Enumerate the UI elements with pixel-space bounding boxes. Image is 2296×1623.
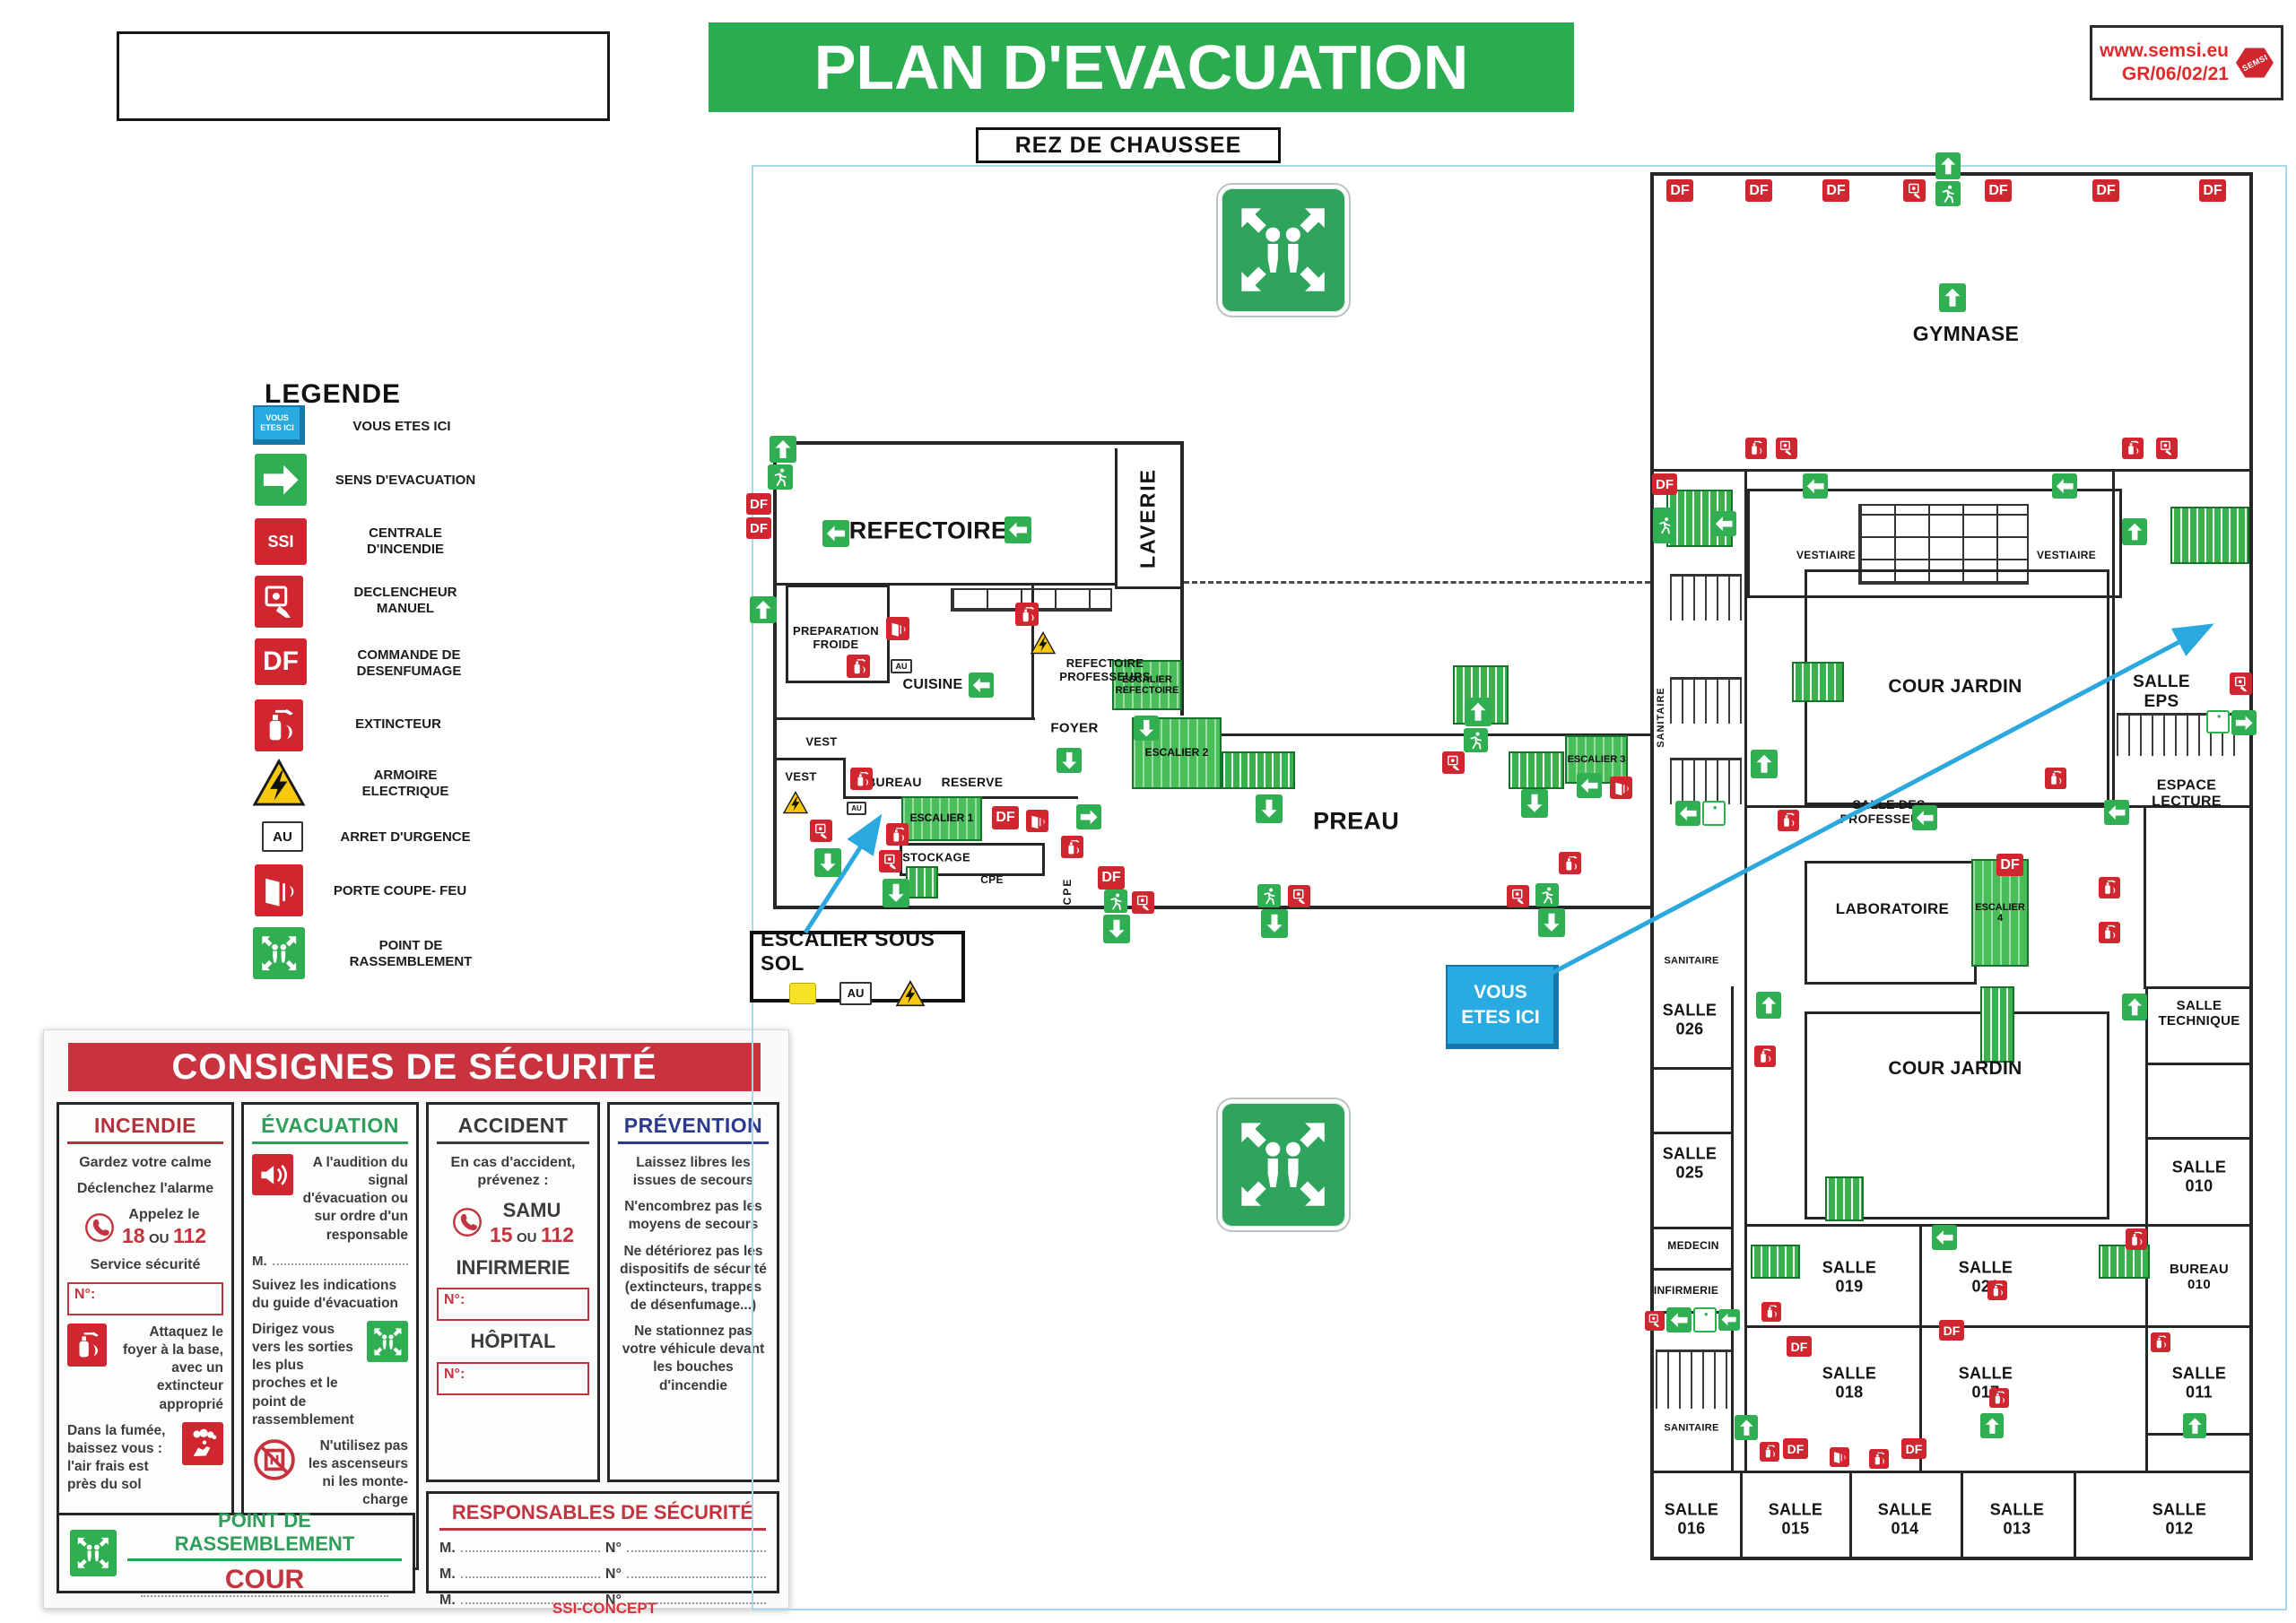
wall [773, 717, 1035, 720]
exit-running-man-icon [2206, 710, 2230, 733]
extinguisher-icon [2122, 438, 2144, 459]
stairs [1751, 1245, 1800, 1279]
number-112: 112 [541, 1223, 574, 1246]
electrical-hazard-icon [251, 759, 307, 807]
assembly-point-icon [1218, 185, 1349, 316]
electrical-hazard-icon [1030, 631, 1057, 655]
prevention-item: Ne stationnez pas votre véhicule devant … [618, 1323, 769, 1395]
accident-intro: En cas d'accident, prévenez : [437, 1154, 589, 1190]
evac-arrow-up-icon [1980, 1413, 2004, 1438]
manual-call-point-icon [1288, 885, 1310, 907]
m-label: M. [439, 1541, 456, 1557]
room-label: SALLE 013 [1981, 1500, 2053, 1537]
extinguisher-icon [1989, 1388, 2009, 1408]
footer-url: www.ssi-concept.com [474, 1620, 735, 1623]
assembly-point-icon [253, 927, 305, 979]
emergency-stop-icon: AU [891, 659, 912, 673]
dotted-line [273, 1253, 408, 1265]
smoke-extraction-icon: DF [255, 638, 307, 685]
incendie-call: Appelez le 18 OU 112 [67, 1206, 223, 1248]
phone-icon [452, 1207, 483, 1237]
room-label: VEST [805, 736, 837, 750]
hopital-label: HÔPITAL [437, 1329, 589, 1354]
wall [2144, 807, 2146, 986]
manual-call-point-icon [1776, 438, 1797, 459]
stair-hatch [1670, 758, 1742, 804]
extinguisher-icon [2045, 768, 2066, 789]
extinguisher-icon [2126, 1228, 2147, 1250]
signal-text: A l'audition du signal d'évacuation ou s… [300, 1154, 408, 1245]
room-label: REFECTOIRE PROFESSEURS [1051, 657, 1159, 684]
m-label: M. [252, 1254, 267, 1269]
evac-arrow-down-icon [1256, 794, 1283, 823]
smoke-extraction-icon: DF [1901, 1438, 1926, 1459]
extinguisher-icon [1760, 1442, 1779, 1462]
legend-item-label: ARMOIRE ELECTRIQUE [334, 768, 477, 800]
escalier-sous-sol-callout: ESCALIER SOUS SOL AU [750, 931, 965, 1002]
wall [843, 758, 846, 798]
extinguisher-icon [67, 1324, 107, 1367]
numero-field: N°: [67, 1282, 223, 1315]
assembly-point-icon [367, 1321, 408, 1362]
room-label: SALLE 025 [1654, 1144, 1726, 1181]
room-label: SALLE 012 [2144, 1500, 2215, 1537]
stairs [1509, 751, 1564, 789]
smoke-text: Dans la fumée, baissez vous : l'air frai… [67, 1422, 175, 1495]
stairs [1825, 1176, 1864, 1221]
reference-texts: www.semsi.eu GR/06/02/21 [2100, 39, 2229, 87]
evac-arrow-left-icon [1912, 805, 1937, 830]
emergency-stop-icon: AU [839, 982, 872, 1005]
numero-field: N°: [437, 1288, 589, 1321]
reference-site: www.semsi.eu [2100, 39, 2229, 63]
you-are-here-legend-icon: VOUS ETES ICI [253, 405, 305, 445]
evac-arrow-left-icon [1666, 1307, 1692, 1332]
you-are-here-box: VOUS ETES ICI [1446, 965, 1559, 1049]
exit-running-man-icon [1104, 890, 1127, 913]
room-label: BUREAU 010 [2163, 1262, 2235, 1293]
stair-hatch [1670, 677, 1742, 724]
phone-icon [84, 1212, 115, 1243]
legend-item-label: VOUS ETES ICI [330, 419, 474, 435]
incendie-title: INCENDIE [67, 1114, 223, 1144]
extinguisher-icon [2151, 1332, 2170, 1352]
laboratoire-outline [1805, 861, 1977, 985]
evac-arrow-left-icon [1577, 773, 1602, 798]
wall [1740, 1471, 1743, 1558]
consignes-panel: CONSIGNES DE SÉCURITÉ INCENDIE Gardez vo… [43, 1029, 789, 1609]
stair-hatch [1670, 574, 1742, 621]
smoke-crouch-icon [182, 1422, 223, 1465]
evac-arrow-down-icon [1261, 909, 1288, 938]
manual-call-point-icon [255, 576, 303, 628]
room-label: SALLE 014 [1869, 1500, 1941, 1537]
extinguisher-icon [1778, 810, 1799, 831]
smoke-row: Dans la fumée, baissez vous : l'air frai… [67, 1422, 223, 1495]
consignes-title: CONSIGNES DE SÉCURITÉ [68, 1043, 761, 1091]
wall [1961, 1471, 1963, 1558]
evac-arrow-down-icon [1103, 915, 1130, 943]
wall [773, 758, 845, 760]
evac-arrow-down-icon [1057, 748, 1082, 773]
evac-arrow-up-icon [1939, 283, 1966, 312]
samu-label: SAMU [490, 1198, 574, 1223]
room-label: PREPARATION FROIDE [787, 625, 885, 652]
smoke-extraction-icon: DF [746, 517, 771, 539]
evac-arrow-left-icon [1711, 511, 1736, 536]
number-112: 112 [173, 1224, 206, 1247]
evac-arrow-up-icon [1756, 992, 1781, 1019]
stairs [1980, 986, 2014, 1063]
footer-brand: SSI-CONCEPT [474, 1597, 735, 1620]
evac-arrow-left-icon [969, 673, 994, 698]
extinguisher-icon [255, 699, 303, 751]
ou-label: OU [517, 1230, 537, 1245]
signal-row: A l'audition du signal d'évacuation ou s… [252, 1154, 408, 1245]
room-label: SALLE 011 [2163, 1364, 2235, 1401]
alarm-speaker-icon [252, 1154, 293, 1195]
manual-call-point-icon [810, 820, 832, 842]
room-label: CPE [980, 874, 1004, 887]
room-label: COUR JARDIN [1888, 1058, 2022, 1080]
exit-running-man-icon [1702, 801, 1726, 826]
electrical-hazard-icon [782, 791, 809, 814]
emergency-stop-icon: AU [847, 802, 866, 815]
evac-arrow-up-icon [1935, 152, 1961, 179]
room-label: GYMNASE [1913, 322, 2019, 345]
manual-call-point-icon [2230, 673, 2252, 695]
manual-call-point-icon [2156, 438, 2178, 459]
assembly-point-icon [70, 1530, 117, 1576]
extinguisher-icon [2099, 922, 2120, 943]
room-label: SALLE 010 [2163, 1158, 2235, 1194]
evac-arrow-up-icon [750, 596, 777, 623]
room-label: SALLE 018 [1813, 1364, 1885, 1401]
wall [773, 441, 1184, 445]
evac-arrow-left-icon [2052, 473, 2077, 499]
smoke-extraction-icon: DF [1745, 179, 1772, 202]
prevention-title: PRÉVENTION [618, 1114, 769, 1144]
smoke-extraction-icon: DF [746, 493, 771, 515]
evac-arrow-down-icon [814, 848, 841, 877]
incendie-line: Gardez votre calme [67, 1154, 223, 1172]
m-label: M. [439, 1567, 456, 1583]
evac-arrow-up-icon [1751, 750, 1778, 778]
wall [1115, 586, 1184, 589]
wall [1744, 471, 1747, 1471]
extinguisher-icon [1754, 1046, 1776, 1067]
evac-arrow-left-icon [1932, 1225, 1957, 1250]
room-label: BUREAU [866, 775, 922, 789]
numero-field: N°: [437, 1362, 589, 1395]
number-15: 15 [490, 1223, 513, 1246]
evac-arrow-up-icon [770, 436, 796, 463]
evac-arrow-down-icon [1538, 908, 1565, 937]
attack-text: Attaquez le foyer à la base, avec un ext… [114, 1324, 223, 1414]
no-elevator-icon [252, 1437, 297, 1482]
extinguisher-icon [1745, 438, 1767, 459]
legend-item-label: POINT DE RASSEMBLEMENT [326, 938, 496, 970]
direct-row: Dirigez vous vers les sorties les plus p… [252, 1321, 408, 1429]
evac-arrow-up-icon [2122, 994, 2147, 1020]
incendie-line: Déclenchez l'alarme [67, 1180, 223, 1198]
room-label: COUR JARDIN [1888, 676, 2022, 698]
prevention-item: Ne détériorez pas les dispositifs de séc… [618, 1243, 769, 1315]
ou-label: OU [149, 1231, 170, 1246]
page-title: PLAN D'EVACUATION [709, 22, 1574, 112]
extinguisher-icon [1869, 1449, 1889, 1469]
extinguisher-icon [1559, 852, 1581, 874]
room-label: PREAU [1313, 807, 1399, 835]
evac-arrow-up-icon [1465, 698, 1492, 726]
wall [773, 441, 777, 907]
wall [1919, 1224, 1922, 1471]
accident-title: ACCIDENT [437, 1114, 589, 1144]
wall [1115, 448, 1118, 588]
room-label: SALLE 026 [1654, 1001, 1726, 1037]
extinguisher-icon [1015, 603, 1039, 626]
attack-row: Attaquez le foyer à la base, avec un ext… [67, 1324, 223, 1414]
smoke-extraction-icon: DF [1652, 473, 1677, 495]
smoke-extraction-icon: DF [1822, 179, 1849, 202]
semsi-logo: SEMSI [2236, 47, 2274, 79]
manual-call-point-icon [1645, 1311, 1665, 1331]
n-label: N° [605, 1567, 622, 1583]
fire-door-icon [255, 864, 303, 916]
prevention-item: N'encombrez pas les moyens de secours [618, 1198, 769, 1234]
direct-text: Dirigez vous vers les sorties les plus p… [252, 1321, 360, 1429]
wall [2074, 1471, 2076, 1558]
panel-footer: SSI-CONCEPT www.ssi-concept.com [474, 1597, 735, 1623]
samu-row: SAMU 15 OU 112 [437, 1198, 589, 1247]
evac-arrow-left-icon [822, 520, 849, 547]
emergency-stop-icon: AU [262, 821, 303, 852]
room-label: LABORATOIRE [1836, 900, 1949, 918]
smoke-extraction-icon: DF [1996, 854, 2023, 876]
manual-call-point-icon [1903, 179, 1926, 202]
smoke-extraction-icon: DF [1666, 179, 1693, 202]
room-label: SANITAIRE [1656, 687, 1666, 747]
rassemblement-location: COUR [141, 1565, 387, 1597]
stairs [1222, 751, 1295, 789]
evac-arrow-left-icon [2104, 800, 2129, 825]
wall [1650, 1132, 1733, 1134]
wall [2144, 986, 2253, 989]
fire-alarm-panel-icon: SSI [255, 518, 307, 565]
evac-arrow-up-icon [2122, 518, 2147, 545]
evac-arrow-up-icon [1735, 1415, 1758, 1440]
fire-door-icon [1830, 1447, 1849, 1467]
assembly-point-icon [1218, 1099, 1349, 1230]
courtyard-dashed-line [1184, 581, 1650, 584]
extinguisher-icon [847, 655, 870, 678]
manual-call-point-icon [1132, 891, 1154, 914]
stairs [1792, 662, 1844, 702]
room-label: VESTIAIRE [2037, 550, 2096, 562]
infirmerie-label: INFIRMERIE [437, 1255, 589, 1280]
evac-arrow-down-icon [1134, 716, 1159, 741]
extinguisher-icon [1761, 1302, 1781, 1322]
wall [1650, 1268, 1733, 1271]
room-label: RESERVE [942, 775, 1004, 789]
reference-box: www.semsi.eu GR/06/02/21 SEMSI [2090, 25, 2283, 100]
evacuation-title: ÉVACUATION [252, 1114, 408, 1144]
room-label: VEST [785, 771, 816, 785]
call-prefix: Appelez le [122, 1206, 206, 1224]
room-label: REFECTOIRE [849, 516, 1008, 544]
evac-arrow-left-icon [1803, 473, 1828, 499]
room-label: FOYER [1050, 720, 1098, 735]
exit-running-man-icon [1693, 1307, 1717, 1332]
wall [1650, 469, 2253, 472]
smoke-extraction-icon: DF [1939, 1320, 1964, 1341]
service-securite: Service sécurité [67, 1256, 223, 1274]
room-label: SALLE 015 [1760, 1500, 1831, 1537]
wall [1849, 1471, 1852, 1558]
responsables-box: RESPONSABLES DE SÉCURITÉ M.N° M.N° M.N° [426, 1491, 779, 1593]
extinguisher-icon [1987, 1280, 2007, 1300]
legend-item-label: DECLENCHEUR MANUEL [329, 585, 482, 617]
room-label: SALLE TECHNIQUE [2152, 998, 2247, 1029]
wall [2145, 1224, 2253, 1227]
evac-arrow-right-icon [2231, 710, 2257, 735]
legend-item-label: CENTRALE D'INCENDIE [329, 525, 482, 558]
room-label: MEDECIN [1667, 1240, 1718, 1253]
follow-text: Suivez les indications du guide d'évacua… [252, 1277, 408, 1313]
evac-arrow-left-icon [1718, 1309, 1740, 1331]
room-label: VESTIAIRE [1796, 550, 1856, 562]
manual-call-point-icon [1507, 885, 1529, 907]
extinguisher-icon [850, 768, 873, 790]
manual-call-point-icon [879, 850, 901, 872]
fire-door-icon [1026, 810, 1048, 832]
room-label: SALLE 019 [1813, 1258, 1885, 1295]
fire-door-icon [886, 617, 909, 640]
room-label: SALLE EPS [2121, 673, 2202, 712]
n-label: N° [605, 1541, 622, 1557]
room-label: SALLE 021 [1950, 1258, 2022, 1295]
smoke-extraction-icon: DF [1098, 866, 1125, 890]
extinguisher-icon [886, 823, 909, 846]
room-label: LAVERIE [1136, 468, 1161, 568]
room-label: CUISINE [903, 677, 963, 693]
m-label: M. [439, 1593, 456, 1609]
wall [2145, 1137, 2253, 1140]
smoke-extraction-icon: DF [992, 806, 1019, 829]
legend-item-label: SENS D'EVACUATION [329, 473, 482, 489]
callout-title: ESCALIER SOUS SOL [761, 927, 954, 976]
room-label: SALLE 016 [1656, 1500, 1727, 1537]
extinguisher-icon [2099, 877, 2120, 898]
smoke-extraction-icon: DF [1985, 179, 2012, 202]
no-lift-text: N'utilisez pas les ascenseurs ni les mon… [304, 1437, 408, 1510]
legend-item-label: PORTE COUPE- FEU [333, 883, 467, 899]
evacuation-arrow-icon [255, 454, 307, 506]
exit-running-man-icon [1935, 181, 1961, 206]
fire-door-icon [1610, 777, 1632, 799]
exit-running-man-icon [1464, 728, 1488, 752]
legend-item-label: EXTINCTEUR [326, 716, 470, 733]
reference-code: GR/06/02/21 [2122, 63, 2229, 86]
wall [2112, 471, 2115, 807]
basement-stairs-key-icon [789, 983, 816, 1004]
evacuation-plan-page: PLAN D'EVACUATION REZ DE CHAUSSEE www.se… [0, 0, 2296, 1623]
stairs [906, 866, 938, 898]
escalier-1: ESCALIER 1 [901, 796, 982, 841]
stair-hatch [1656, 1350, 1731, 1409]
wall [2145, 1325, 2253, 1328]
rassemblement-title: POINT DE RASSEMBLEMENT [127, 1509, 402, 1561]
exit-running-man-icon [1535, 883, 1559, 907]
legend-item-label: ARRET D'URGENCE [334, 829, 477, 846]
exit-running-man-icon [768, 464, 793, 490]
room-label: ESPACE LECTURE [2137, 778, 2236, 811]
evac-arrow-left-icon [1675, 801, 1700, 826]
room-label: STOCKAGE [902, 852, 970, 865]
smoke-extraction-icon: DF [1783, 1438, 1808, 1459]
smoke-extraction-icon: DF [2092, 179, 2119, 202]
no-lift-row: N'utilisez pas les ascenseurs ni les mon… [252, 1437, 408, 1510]
consignes-evacuation: ÉVACUATION A l'audition du signal d'évac… [241, 1102, 419, 1570]
evac-arrow-right-icon [1076, 804, 1101, 829]
smoke-extraction-icon: DF [1787, 1336, 1812, 1357]
exit-running-man-icon [1257, 884, 1281, 907]
consignes-accident: ACCIDENT En cas d'accident, prévenez : S… [426, 1102, 600, 1482]
rassemblement-box: POINT DE RASSEMBLEMENT COUR [57, 1513, 415, 1593]
prevention-item: Laissez libres les issues de secours [618, 1154, 769, 1190]
room-label: SANITAIRE [1664, 956, 1718, 968]
responsables-title: RESPONSABLES DE SÉCURITÉ [439, 1501, 766, 1531]
school-name-box [117, 31, 610, 121]
wall [1650, 1227, 1733, 1229]
electrical-hazard-icon [895, 980, 926, 1007]
room-label: CPE [1061, 878, 1074, 906]
evac-arrow-left-icon [1004, 516, 1031, 543]
smoke-extraction-icon: DF [2199, 179, 2226, 202]
room-label: SALLE 017 [1950, 1364, 2022, 1401]
consignes-incendie: INCENDIE Gardez votre calme Déclenchez l… [57, 1102, 234, 1570]
wall [2145, 1063, 2253, 1065]
wall [1650, 1067, 1733, 1070]
manual-call-point-icon [1442, 751, 1465, 774]
number-18: 18 [122, 1224, 145, 1247]
extinguisher-icon [1061, 836, 1083, 858]
room-label: INFIRMERIE [1654, 1285, 1718, 1298]
evac-arrow-down-icon [883, 879, 909, 907]
legend-item-label: COMMANDE DE DESENFUMAGE [328, 647, 490, 680]
evac-arrow-up-icon [2183, 1413, 2206, 1438]
floor-title: REZ DE CHAUSSEE [976, 127, 1281, 163]
stairs [2170, 507, 2249, 564]
room-label: SANITAIRE [1664, 1423, 1718, 1435]
evac-arrow-down-icon [1521, 789, 1548, 818]
exit-running-man-icon [1653, 508, 1676, 543]
